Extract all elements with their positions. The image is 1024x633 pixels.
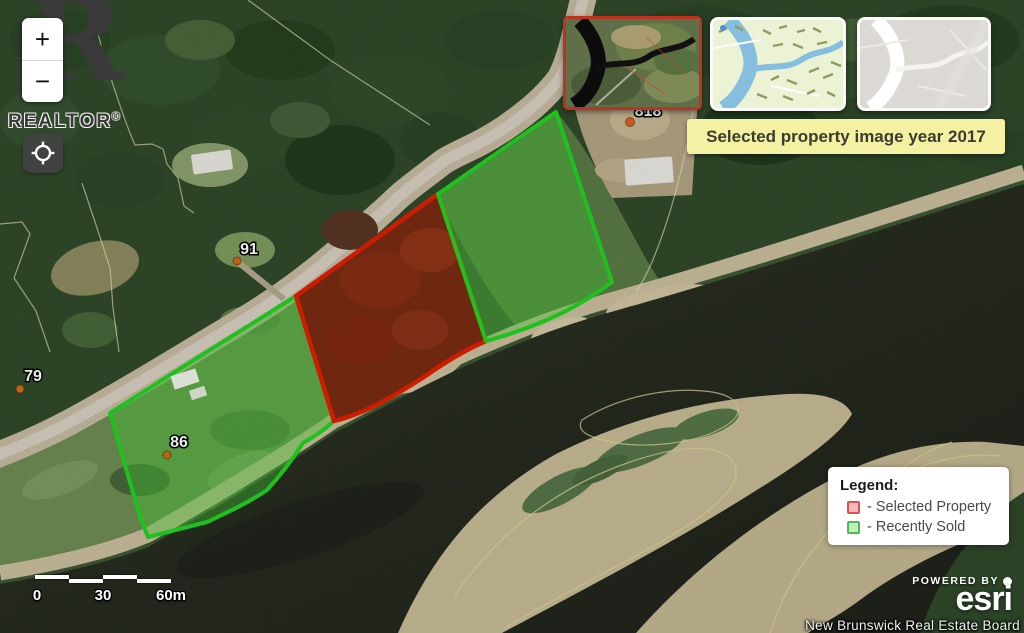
scale-label-30: 30 — [95, 587, 112, 604]
legend-item-recently-sold: - Recently Sold — [840, 519, 999, 535]
scale-bar-segment — [103, 575, 137, 579]
locate-button[interactable] — [23, 133, 63, 173]
zoom-control: + − — [22, 18, 63, 102]
legend-panel: Legend: - Selected Property - Recently S… — [828, 467, 1009, 545]
map-viewport[interactable]: 91 79 86 818 R + − REALTOR® — [0, 0, 1024, 633]
scale-bar-segment — [137, 579, 171, 583]
zoom-in-button[interactable]: + — [22, 18, 63, 60]
recently-sold-swatch — [847, 521, 860, 534]
light-gray-thumbnail-image — [860, 20, 988, 108]
scale-bar-segment — [69, 579, 103, 583]
registered-mark: ® — [112, 112, 121, 123]
realtor-wordmark: REALTOR® — [8, 111, 121, 133]
legend-title: Legend: — [840, 477, 999, 494]
board-attribution: New Brunswick Real Estate Board — [805, 618, 1020, 633]
realtor-wordmark-text: REALTOR — [8, 111, 112, 132]
zoom-out-button[interactable]: − — [22, 60, 63, 103]
selected-property-swatch — [847, 501, 860, 514]
legend-label-recently-sold: - Recently Sold — [867, 519, 965, 535]
scale-label-0: 0 — [33, 587, 41, 604]
crosshair-icon — [30, 140, 56, 166]
basemap-thumbnail-streets[interactable] — [710, 17, 846, 111]
satellite-thumbnail-image — [566, 19, 699, 107]
street-map-thumbnail-image — [713, 20, 843, 108]
legend-item-selected-property: - Selected Property — [840, 499, 999, 515]
esri-attribution: POWERED BY esri — [912, 575, 1012, 613]
scale-bar: 0 30 60m — [24, 566, 184, 606]
basemap-thumbnail-gray[interactable] — [857, 17, 991, 111]
selected-year-banner: Selected property image year 2017 — [687, 119, 1005, 154]
basemap-thumbnail-satellite[interactable] — [563, 16, 702, 110]
legend-label-selected-property: - Selected Property — [867, 499, 991, 515]
scale-bar-segment — [35, 575, 69, 579]
esri-logo-text: esri — [912, 587, 1012, 613]
scale-label-60: 60m — [156, 587, 186, 604]
